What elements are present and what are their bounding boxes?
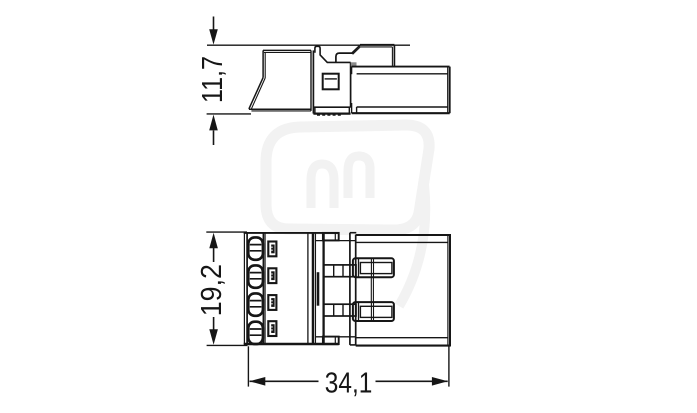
svg-text:34,1: 34,1	[325, 367, 373, 399]
svg-text:19,2: 19,2	[196, 264, 228, 316]
svg-text:11,7: 11,7	[197, 56, 229, 103]
